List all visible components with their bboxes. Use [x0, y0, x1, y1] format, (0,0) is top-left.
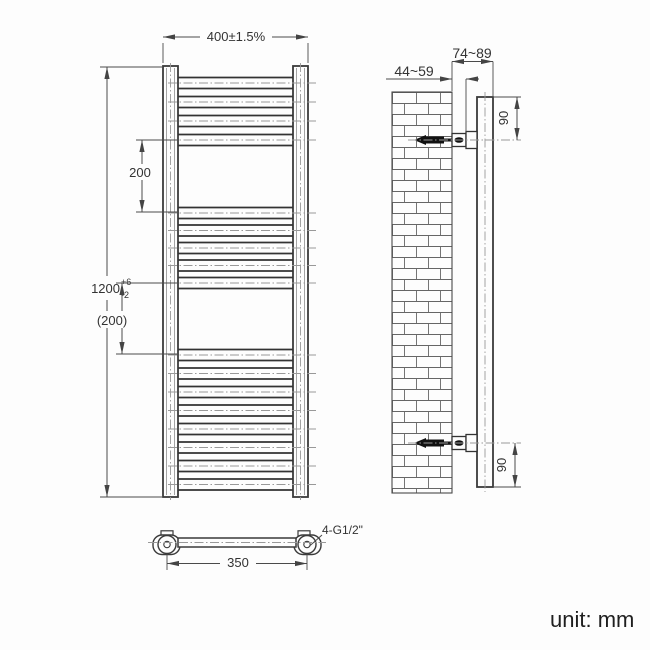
towel-radiator-drawing: 400±1.5% 1200 +6 -2 200 (200) [0, 0, 650, 650]
plan-view: 350 4-G1/2" [148, 523, 363, 570]
upper-spacing-text: 200 [129, 165, 151, 180]
unit-label: unit: mm [550, 607, 634, 632]
width-dimension: 400±1.5% [163, 29, 308, 63]
height-dimension: 1200 +6 -2 [83, 67, 162, 497]
technical-drawing-page: 400±1.5% 1200 +6 -2 200 (200) [0, 0, 650, 650]
top-offset-text: 90 [496, 111, 511, 125]
pipe-spacing-dimension: 350 [167, 554, 307, 570]
height-tolerance-plus: +6 [121, 277, 131, 287]
front-view: 400±1.5% 1200 +6 -2 200 (200) [83, 29, 316, 500]
connections-label: 4-G1/2" [322, 523, 363, 537]
wall-to-front-dimension: 74~89 [452, 45, 493, 96]
bottom-offset-text: 90 [494, 458, 509, 472]
top-offset-dimension: 90 [494, 97, 521, 140]
width-dim-text: 400±1.5% [207, 29, 266, 44]
brick-wall [392, 92, 452, 493]
side-view: 74~89 44~59 90 90 [386, 45, 521, 493]
wall-to-front-text: 74~89 [452, 45, 492, 61]
height-dim-text: 1200 [91, 281, 120, 296]
bottom-offset-dimension: 90 [494, 443, 521, 487]
pipe-spacing-text: 350 [227, 555, 249, 570]
wall-to-bracket-text: 44~59 [394, 63, 434, 79]
lower-spacing-text: (200) [97, 313, 127, 328]
